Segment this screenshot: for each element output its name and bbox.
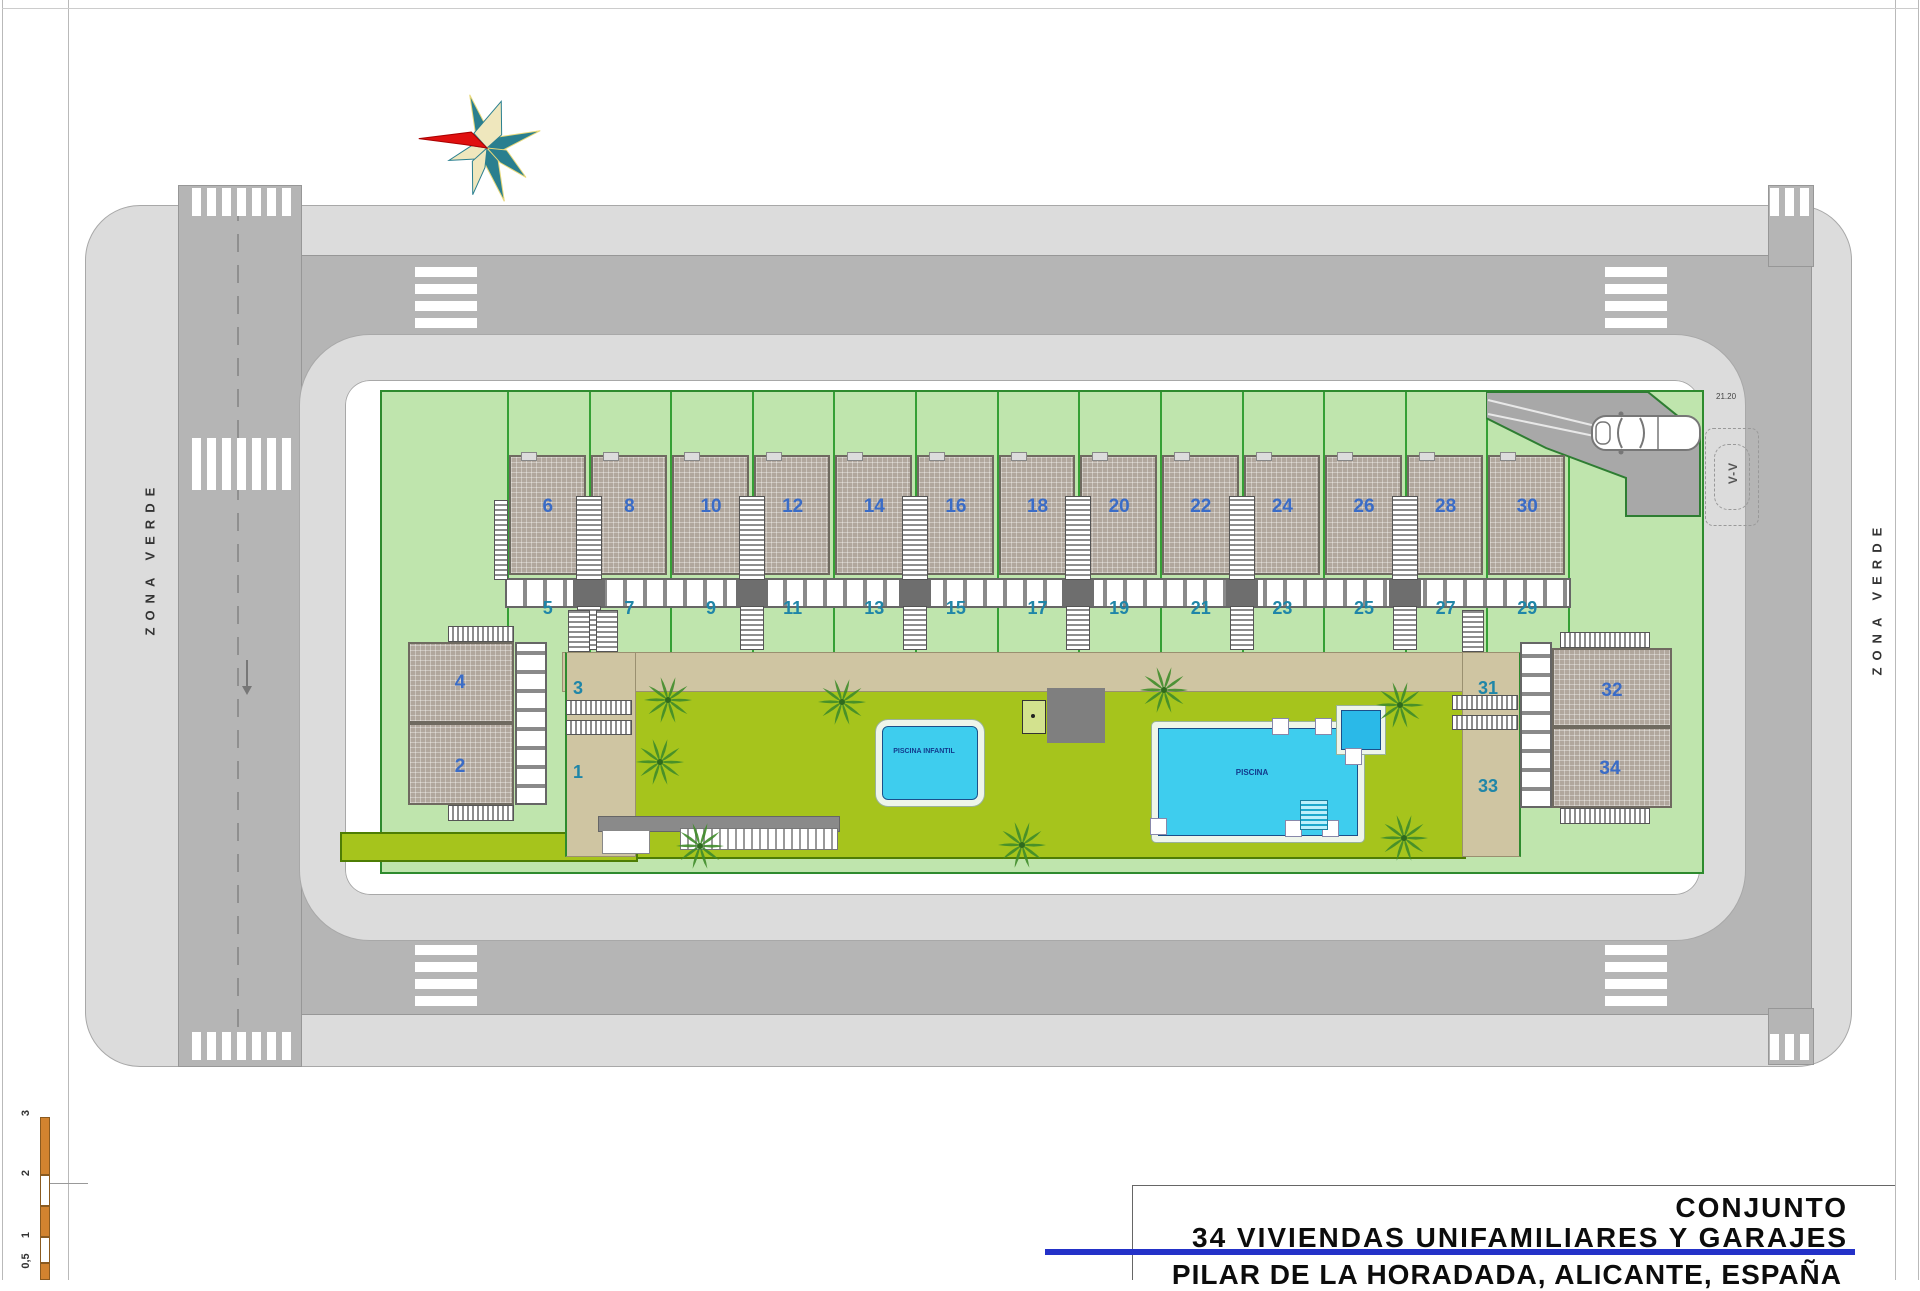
palm-tree-icon [814,674,870,730]
kids-pool [876,720,984,806]
roof-chimney [929,452,945,461]
stairs [576,496,602,580]
stairs-west-path [566,720,632,735]
scale-leader-line [50,1183,88,1184]
titleblock-left-line [1132,1185,1133,1280]
stairs-west-plot [568,610,590,652]
terrace-slats-west [515,642,547,805]
scale-bar-segment [40,1237,50,1263]
stair-landing [1062,580,1094,606]
stairs-west-path [566,700,632,715]
roof-chimney [1092,452,1108,461]
unit-number-upper: 30 [1486,496,1568,518]
crosswalk [1605,944,1667,1006]
service-pad [1047,688,1105,743]
roof-chimney [1256,452,1272,461]
unit-number: 32 [1582,680,1642,702]
palm-tree-icon [632,734,688,790]
unit-number: 33 [1470,776,1506,797]
left-road [178,185,302,1067]
stairs [1229,496,1255,580]
garden-ramp [602,830,650,854]
stairs [1392,496,1418,580]
car-icon [1588,408,1708,458]
unit-number-lower: 29 [1486,598,1568,619]
stair-landing [736,580,768,606]
scale-bar-segment [40,1263,50,1280]
dimension-label: 21.20 [1716,392,1736,401]
sheet-frame-left [68,0,69,1280]
stair-landing [1226,580,1258,606]
compass-rose-icon [412,78,562,218]
unit-number: 2 [430,756,490,778]
fountain-dot [1031,714,1035,718]
crosswalk [415,944,477,1006]
stairs-lower-stub [1230,606,1254,650]
roof-chimney [1500,452,1516,461]
road-centerline [237,192,239,1058]
stairs-east-path [1452,695,1518,710]
stair-landing [573,580,605,606]
roof-chimney [766,452,782,461]
kids-pool-label: PISCINA INFANTIL [884,748,964,756]
zona-verde-right-label: ZONA VERDE [1870,526,1885,676]
sheet-frame-right [1895,0,1896,1280]
unit-number: 34 [1580,758,1640,780]
stair-landing [899,580,931,606]
traffic-direction-arrow [246,660,248,692]
crosswalk [1770,188,1810,216]
stairs-west-south [448,805,514,821]
pool-pad [1272,718,1289,735]
roof-chimney [847,452,863,461]
palm-tree-icon [1136,662,1192,718]
palm-tree-icon [640,672,696,728]
project-location: PILAR DE LA HORADADA, ALICANTE, ESPAÑA [1172,1259,1842,1291]
crosswalk [192,438,296,490]
zona-verde-left-label: ZONA VERDE [143,486,158,636]
sheet-border-left [2,0,3,1280]
palm-tree-icon [1376,810,1432,866]
roof-chimney [684,452,700,461]
title-accent-bar [1045,1249,1855,1255]
scale-bar-tick: 2 [20,1161,32,1185]
pool-pad [1315,718,1332,735]
pool-pad [1345,748,1362,765]
main-pool-label: PISCINA [1212,768,1292,778]
roof-chimney [1011,452,1027,461]
sheet-frame-top [2,8,1918,9]
roof-chimney [1174,452,1190,461]
palm-tree-icon [672,818,728,874]
scale-bar-tick: 1 [20,1223,32,1247]
scale-bar-segment [40,1206,50,1237]
project-title: CONJUNTO [1675,1192,1848,1224]
stairs-lower-stub [903,606,927,650]
roof-chimney [603,452,619,461]
sheet-border-right [1918,0,1919,1280]
stairs-east-plot [1462,610,1484,652]
stairs [739,496,765,580]
crosswalk [1605,264,1667,328]
stairs-west-plot [596,610,618,652]
palm-tree-icon [994,817,1050,873]
pool-pad [1150,818,1167,835]
stairs-east-north [1560,632,1650,648]
stairs [902,496,928,580]
terrace-slats-east [1520,642,1552,808]
scale-bar-tick: 3 [20,1101,32,1125]
section-label: V-V [1726,462,1740,484]
unit-number: 3 [560,678,596,699]
scale-bar-tick: 0,5 [20,1249,32,1273]
stairs-east-path [1452,715,1518,730]
stairs-west-north [448,626,514,642]
site-plan-sheet: { "title_block": { "project": "CONJUNTO"… [0,0,1920,1280]
crosswalk [415,264,477,328]
roof-chimney [1419,452,1435,461]
scale-bar-segment [40,1117,50,1175]
stairs-lower-stub [1393,606,1417,650]
stairs [1065,496,1091,580]
stairs-east-south [1560,808,1650,824]
stairs-lower-stub [1066,606,1090,650]
scale-bar-segment [40,1175,50,1206]
stairs-lower-stub [740,606,764,650]
roof-chimney [521,452,537,461]
crosswalk [1770,1034,1810,1060]
unit-number: 1 [560,762,596,783]
palm-tree-icon [1372,677,1428,733]
titleblock-top-line [1132,1185,1895,1186]
stairs-row-west-end [494,500,508,580]
roof-chimney [1337,452,1353,461]
crosswalk [192,1032,296,1060]
pool-steps [1300,800,1328,830]
crosswalk [192,188,296,216]
unit-number: 4 [430,672,490,694]
stair-landing [1389,580,1421,606]
